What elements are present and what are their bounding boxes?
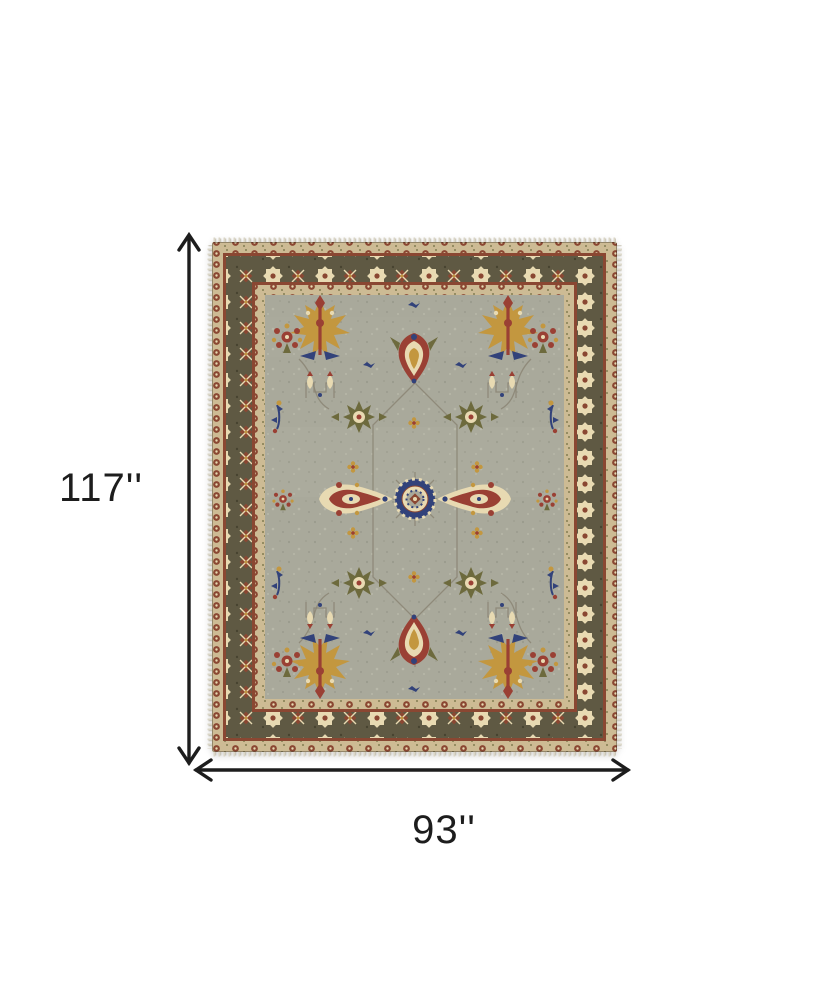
product-dimension-image: 117'' 93'' — [0, 0, 817, 1000]
width-dimension-line — [196, 760, 628, 780]
width-dimension-label: 93'' — [384, 810, 504, 850]
rug-product-image — [207, 237, 622, 757]
rug-medallion — [388, 472, 442, 526]
height-dimension-line — [179, 235, 199, 763]
height-dimension-label: 117'' — [42, 468, 160, 508]
rug-field — [265, 295, 564, 699]
